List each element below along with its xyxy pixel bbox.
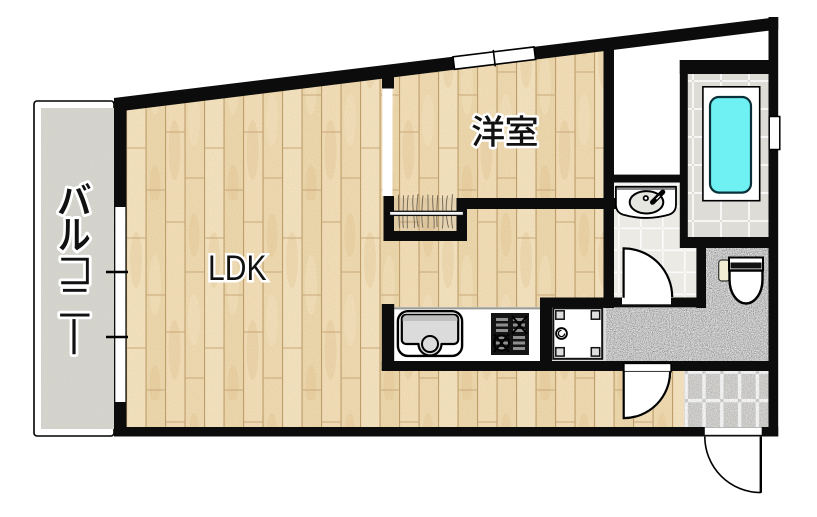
svg-text:LDK: LDK: [208, 249, 267, 288]
